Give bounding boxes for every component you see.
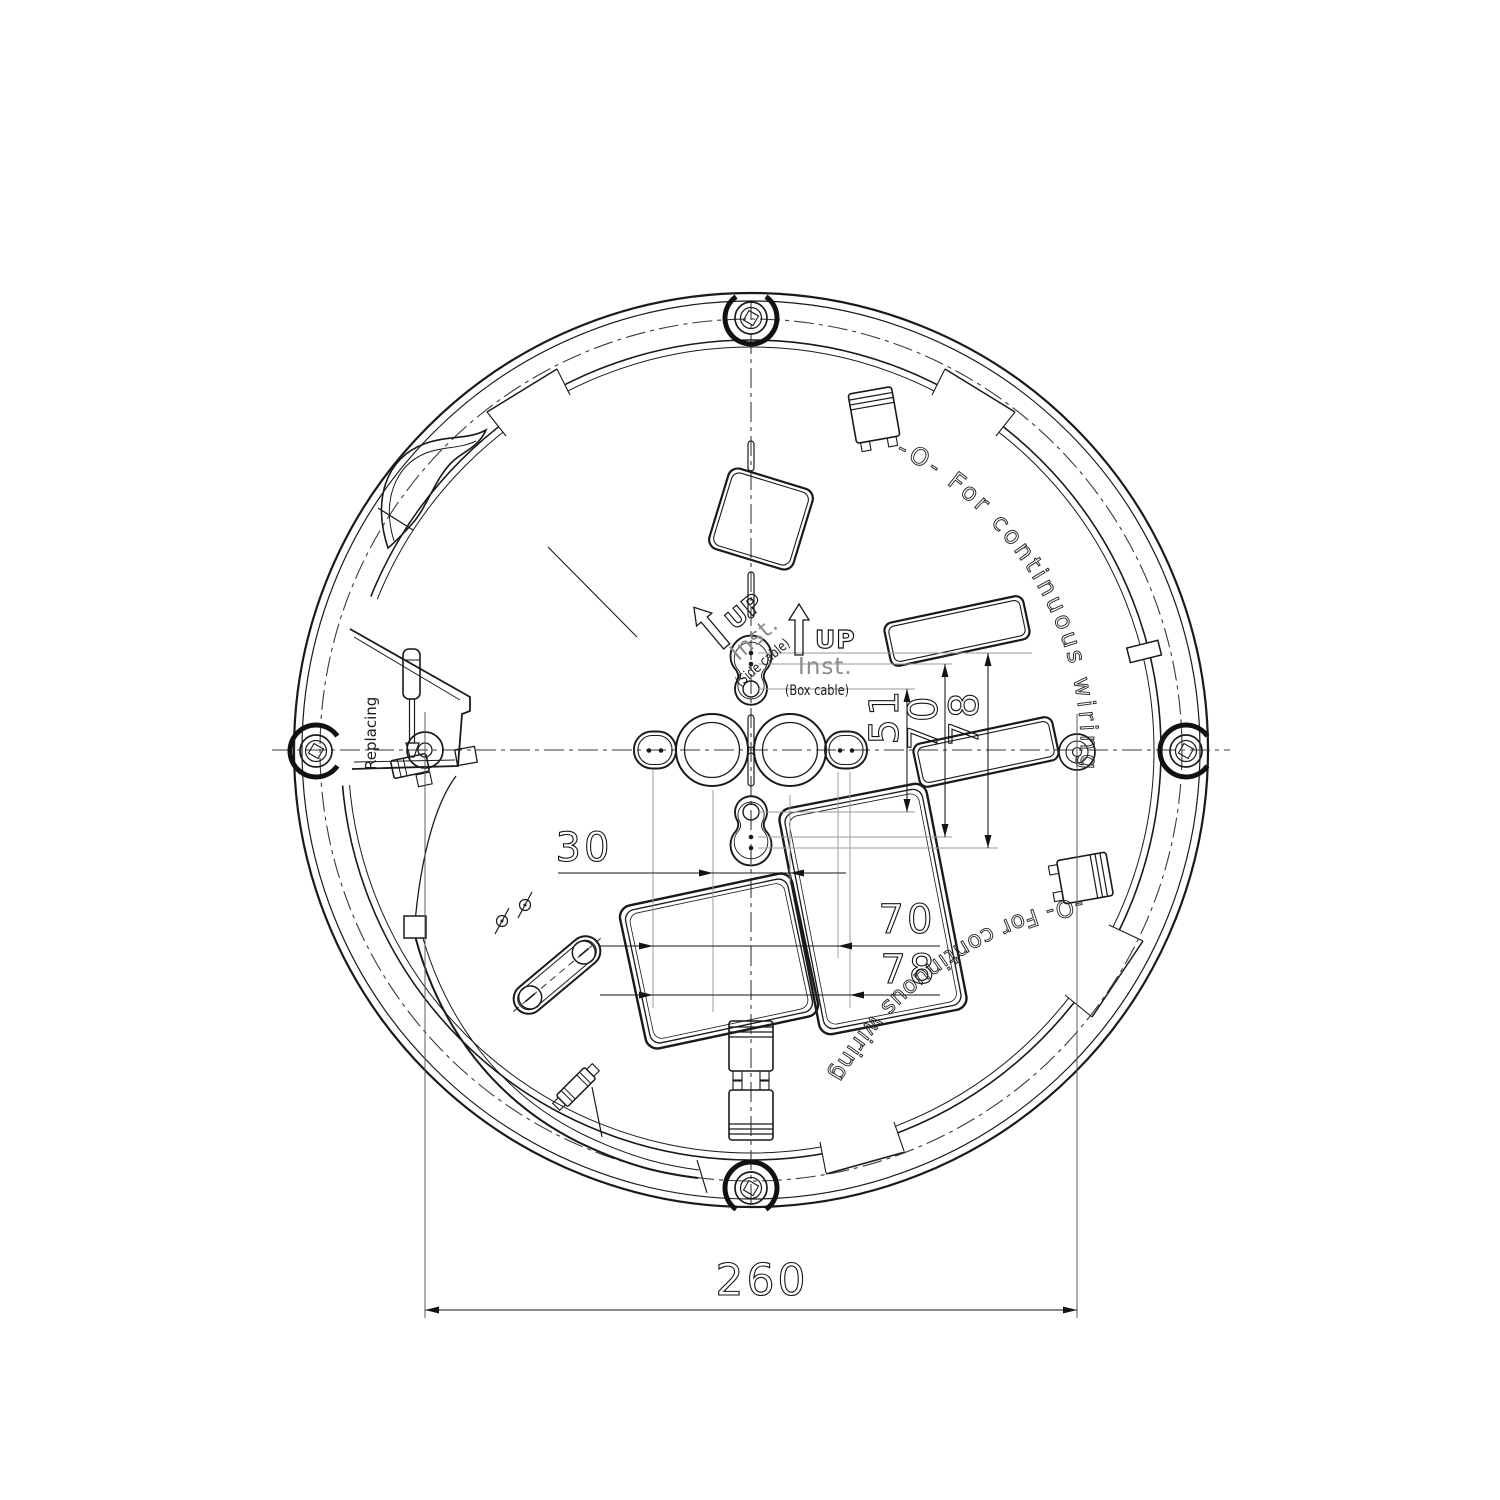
label-inst-box: Inst. (798, 654, 853, 680)
dim-30-value: 30 (556, 825, 613, 871)
dim-70v-value: 70 (901, 694, 947, 751)
dim-78v-value: 78 (942, 690, 988, 747)
dim-70h-value: 70 (879, 897, 936, 943)
label-cable-box: (Box cable) (785, 683, 849, 699)
label-replacing: Replacing (362, 697, 380, 770)
mounting-plate-technical-drawing: 51 70 78 30 70 78 260 (0, 0, 1500, 1500)
edge-tab (404, 916, 426, 938)
dim-260-value: 260 (716, 1255, 809, 1306)
label-up-box: UP (815, 625, 856, 654)
